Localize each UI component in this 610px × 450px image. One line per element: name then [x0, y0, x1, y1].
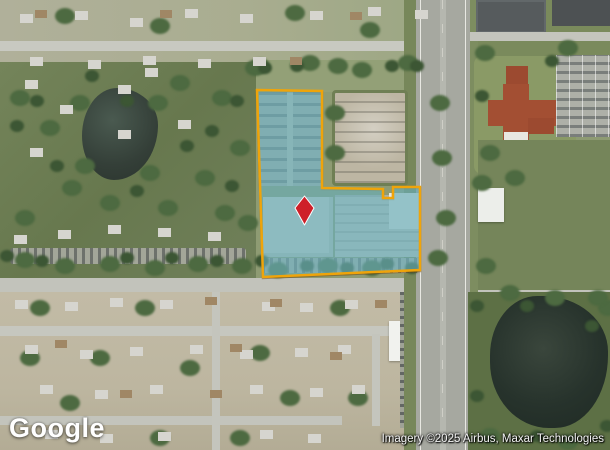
google-logo[interactable]: Google: [9, 413, 105, 444]
parcel-boundary: [257, 90, 420, 277]
map-canvas[interactable]: Google Imagery ©2025 Airbus, Maxar Techn…: [0, 0, 610, 450]
parcel-overlay-svg: [0, 0, 610, 450]
map-attribution: Imagery ©2025 Airbus, Maxar Technologies: [382, 433, 604, 445]
